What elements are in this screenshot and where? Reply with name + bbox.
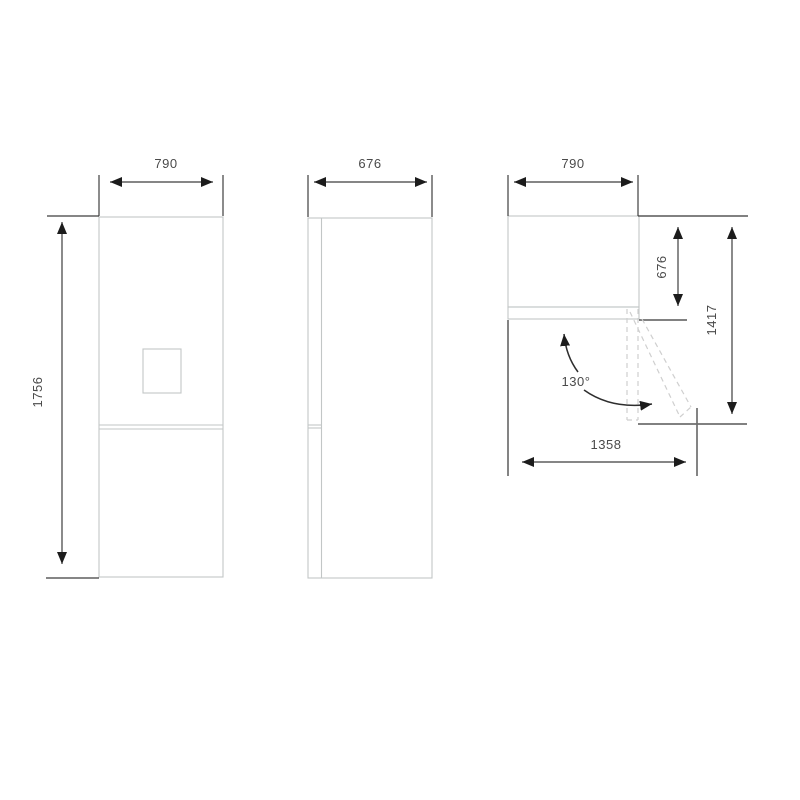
side-depth-label: 676 [358,156,381,171]
top-view: 130° 790 676 1417 1358 [508,156,748,476]
door-130deg-end-cap-dashed [680,407,691,417]
top-depth-label: 676 [654,255,669,278]
front-height-label: 1756 [30,377,45,408]
side-body-outline [308,218,432,578]
top-open-depth-label: 1417 [704,305,719,336]
top-width-label: 790 [561,156,584,171]
top-open-width-label: 1358 [591,437,622,452]
door-swing-arc-upper [564,334,578,372]
drawing-canvas: 790 1756 676 [0,0,800,800]
front-width-label: 790 [154,156,177,171]
front-view: 790 1756 [30,156,223,578]
front-cabinet-outline [99,217,223,577]
door-angle-label: 130° [562,374,591,389]
door-130deg-inner-edge-dashed [642,319,691,407]
appliance-dimension-drawing: 790 1756 676 [0,0,800,800]
front-dispenser-outline [143,349,181,393]
top-door-closed-outline [508,307,639,319]
side-view: 676 [308,156,432,578]
top-cabinet-outline [508,216,639,307]
door-swing-arc-lower [584,390,652,405]
